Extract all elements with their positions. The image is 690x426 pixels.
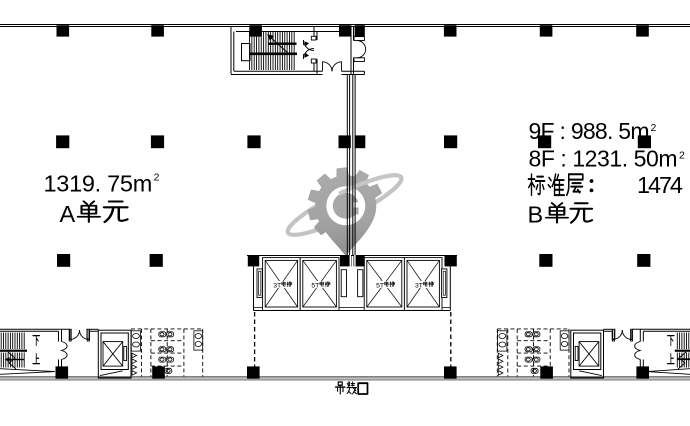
svg-text:A: A	[60, 201, 76, 227]
svg-text:5T: 5T	[311, 282, 319, 289]
svg-text:5T: 5T	[376, 282, 384, 289]
svg-text:3T: 3T	[273, 282, 281, 289]
svg-text:8F : 1231. 50m: 8F : 1231. 50m	[529, 146, 678, 172]
svg-text:9F : 988. 5m: 9F : 988. 5m	[529, 118, 650, 144]
svg-text:1319. 75m: 1319. 75m	[44, 171, 153, 197]
svg-text:2: 2	[679, 150, 685, 162]
svg-text:3T: 3T	[415, 282, 423, 289]
svg-text:1474: 1474	[637, 172, 683, 198]
svg-text:2: 2	[651, 122, 657, 134]
svg-text:B: B	[528, 202, 544, 228]
svg-text:2: 2	[154, 172, 160, 184]
